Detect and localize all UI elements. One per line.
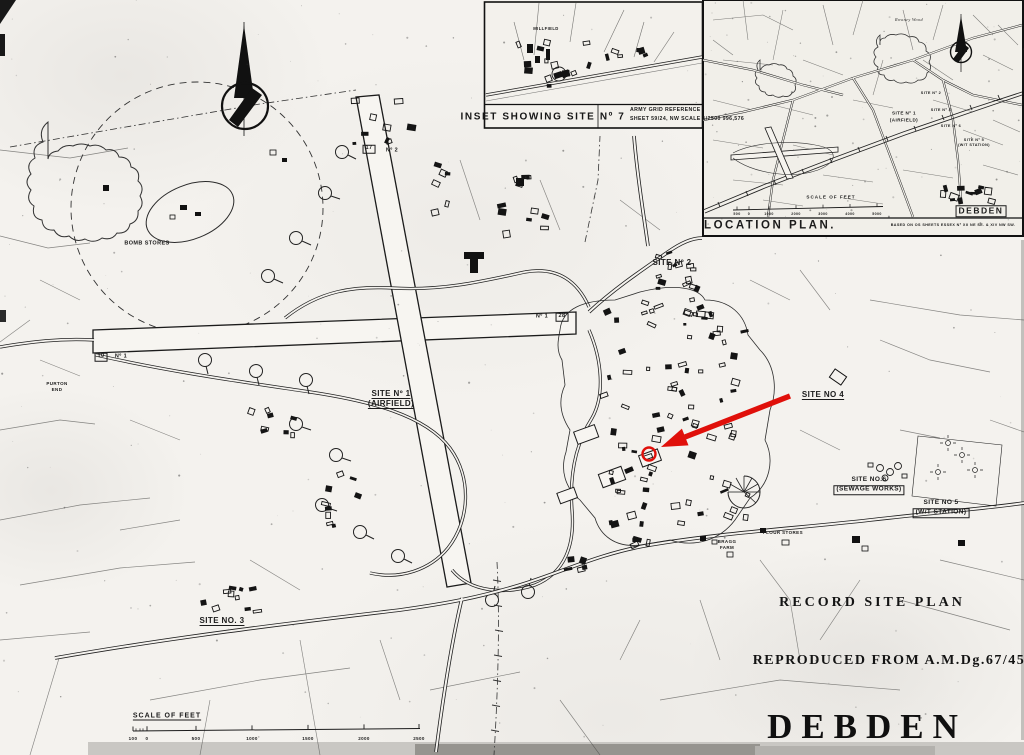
record-site-plan-title: RECORD SITE PLAN bbox=[779, 595, 965, 611]
station-name-title: DEBDEN bbox=[767, 707, 967, 747]
boundary-lines bbox=[10, 90, 600, 755]
site-boundary bbox=[558, 287, 774, 545]
reproduced-from-label: REPRODUCED FROM A.M.Dg.67/45 bbox=[753, 653, 1024, 669]
runways bbox=[93, 95, 576, 587]
wood-outline bbox=[27, 122, 142, 241]
runway-10-28 bbox=[93, 312, 576, 353]
dispersal-pans bbox=[199, 146, 535, 607]
record-site-plan-sheet[interactable]: BOMB STORESSITE Nº 1(AIRFIELD)SITE Nº 2S… bbox=[0, 0, 1024, 755]
north-arrow bbox=[222, 22, 268, 136]
site4-buildings bbox=[829, 369, 846, 385]
bomb-stores-area bbox=[27, 82, 323, 334]
inset-site7-title: INSET SHOWING SITE Nº 7 bbox=[461, 112, 626, 123]
safety-circle bbox=[71, 82, 323, 334]
scale-bar bbox=[133, 724, 420, 731]
wt-station-masts bbox=[912, 435, 1002, 506]
sewage-works bbox=[868, 463, 907, 482]
boundary-ticks bbox=[491, 580, 503, 732]
army-grid-reference-line2: SHEET 59/24, NW SCALE 1/2500 996,576 bbox=[630, 116, 744, 122]
army-grid-reference-line1: ARMY GRID REFERENCE bbox=[630, 107, 701, 113]
location-plan bbox=[703, 0, 1023, 236]
